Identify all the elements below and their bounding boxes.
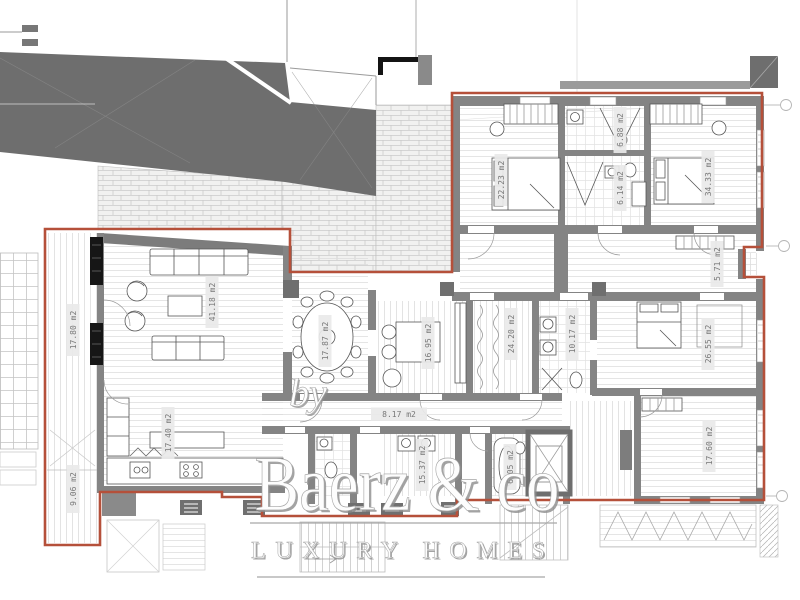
door-gap: [598, 226, 622, 233]
dining-chair: [293, 346, 303, 358]
door-gap: [560, 293, 588, 300]
area-label-kitchen: 17.40 m2: [162, 407, 175, 459]
shaft-hatch: [760, 505, 778, 557]
pillar: [418, 55, 432, 85]
label-text: 22.23 m2: [497, 161, 506, 200]
sink: [567, 110, 583, 124]
dining-chair: [351, 316, 361, 328]
neighbor-tile-terrace: [0, 253, 38, 449]
label-text: 41.18 m2: [208, 283, 217, 322]
bookshelf: [455, 303, 466, 383]
floor-balcony-east: [746, 253, 762, 275]
wall: [554, 234, 568, 292]
label-text: 6.14 m2: [616, 171, 625, 205]
balcony-south: [600, 505, 756, 547]
armchair: [125, 311, 145, 331]
label-text: 16.95 m2: [424, 324, 433, 363]
neighbor-counter: [0, 452, 36, 467]
pillow: [661, 304, 678, 312]
coffee-table: [168, 296, 202, 316]
label-text: 8.17 m2: [382, 410, 416, 419]
door-gap: [285, 427, 305, 433]
area-label-shower-room: 6.14 m2: [614, 165, 627, 211]
neighbor-counter: [0, 470, 36, 485]
area-label-hallway: 8.17 m2: [371, 408, 427, 421]
toilet: [570, 372, 582, 388]
wall: [558, 150, 651, 156]
dining-chair: [301, 297, 313, 307]
area-label-bath-master: 10.17 m2: [566, 308, 579, 360]
watermark-brand: Baerz & co: [255, 440, 560, 527]
window: [590, 97, 616, 105]
area-label-terrace-southwest: 9.06 m2: [67, 465, 80, 513]
door-gap: [468, 226, 494, 233]
area-label-bedroom-ne: 34.33 m2: [702, 151, 715, 203]
label-text: 10.17 m2: [568, 315, 577, 354]
pillow: [656, 160, 665, 178]
area-label-study: 16.95 m2: [422, 317, 435, 369]
label-text: 24.20 m2: [507, 315, 516, 354]
dining-chair: [293, 316, 303, 328]
pillar: [283, 280, 299, 298]
wall: [592, 388, 764, 396]
dining-chair: [320, 291, 334, 301]
label-text: 34.33 m2: [704, 158, 713, 197]
pillar: [440, 282, 454, 296]
watermark-by: by: [289, 370, 327, 415]
label-text: 17.87 m2: [321, 322, 330, 361]
window: [700, 97, 726, 105]
duct: [620, 430, 632, 470]
label-text: 17.80 m2: [69, 311, 78, 350]
hob: [180, 462, 202, 478]
desk-chair: [382, 345, 396, 359]
label-text: 17.40 m2: [164, 414, 173, 453]
wall: [466, 300, 473, 395]
sofa: [152, 336, 224, 360]
door-gap: [470, 293, 494, 300]
door-gap: [470, 427, 490, 433]
wardrobe: [642, 398, 682, 411]
window-frame-dark: [90, 237, 103, 285]
pouf: [712, 121, 726, 135]
area-label-bedroom-master: 26.55 m2: [702, 318, 715, 370]
label-text: 17.60 m2: [705, 427, 714, 466]
pillow: [640, 304, 658, 312]
lower-room: [163, 524, 205, 570]
wall-pier: [102, 492, 136, 516]
area-label-dressing: 24.20 m2: [505, 308, 518, 360]
area-label-dining: 17.87 m2: [319, 315, 332, 367]
wall: [634, 388, 641, 504]
door-gap: [360, 427, 380, 433]
floor-plan: 17.80 m2 9.06 m2 41.18 m2 17.87 m2 17.40…: [0, 0, 800, 600]
pillar: [592, 282, 606, 296]
door-gap: [700, 293, 724, 300]
wall: [532, 300, 539, 395]
floor-plan-page: 17.80 m2 9.06 m2 41.18 m2 17.87 m2 17.40…: [0, 0, 800, 600]
door-gap: [520, 394, 542, 400]
label-text: 9.06 m2: [69, 472, 78, 506]
lounge-chair: [383, 369, 401, 387]
label-text: 5.71 m2: [713, 247, 722, 281]
closet: [676, 236, 734, 249]
door-gap: [590, 340, 597, 360]
wall: [262, 426, 564, 434]
door-gap: [368, 330, 376, 356]
area-label-balcony-east: 5.71 m2: [711, 241, 724, 287]
upper-facade-band: [560, 81, 750, 89]
wardrobe: [650, 104, 702, 124]
area-label-bedroom-nw: 22.23 m2: [495, 154, 508, 206]
brick-column: [376, 105, 452, 272]
site-wall-stub: [22, 25, 38, 32]
door-gap: [640, 389, 662, 395]
dining-chair: [341, 297, 353, 307]
label-text: 6.88 m2: [616, 113, 625, 147]
dining-chair: [341, 367, 353, 377]
door-gap: [694, 226, 718, 233]
dining-chair: [351, 346, 361, 358]
area-label-bedroom-se: 17.60 m2: [703, 420, 716, 472]
cabinet: [632, 182, 646, 206]
site-wall-stub: [22, 39, 38, 46]
pillow: [656, 182, 665, 200]
kitchen-island: [150, 432, 224, 448]
area-label-living: 41.18 m2: [206, 276, 219, 328]
label-text: 26.55 m2: [704, 325, 713, 364]
pouf: [490, 122, 504, 136]
area-label-terrace-west: 17.80 m2: [67, 304, 80, 356]
tall-cabinet: [107, 398, 129, 456]
desk-chair: [382, 325, 396, 339]
area-label-bath-nw: 6.88 m2: [614, 107, 627, 153]
door-gap: [420, 394, 442, 400]
